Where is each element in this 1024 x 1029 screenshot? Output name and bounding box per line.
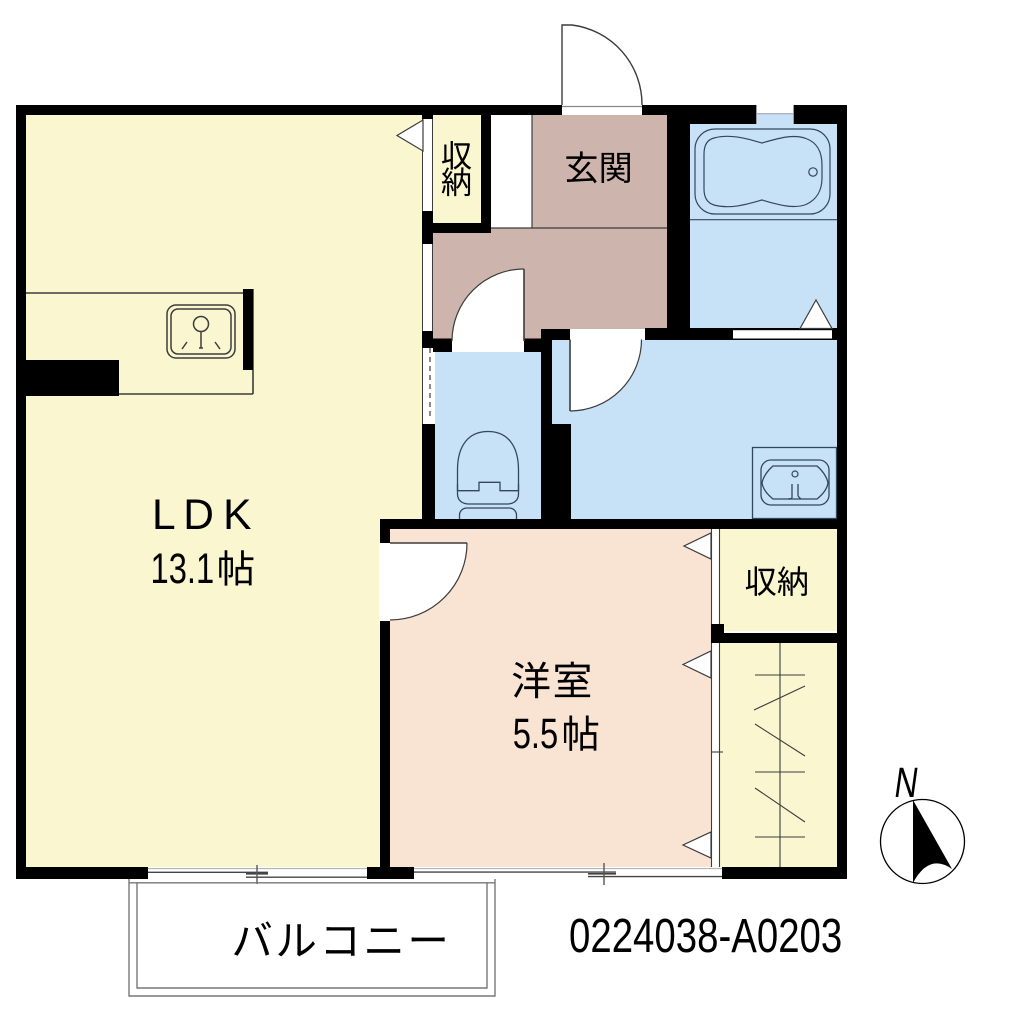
svg-text:5.5: 5.5 xyxy=(513,711,558,758)
svg-text:13.1: 13.1 xyxy=(151,546,215,593)
svg-text:0224038-A0203: 0224038-A0203 xyxy=(569,910,842,963)
svg-text:L D K: L D K xyxy=(152,492,251,539)
